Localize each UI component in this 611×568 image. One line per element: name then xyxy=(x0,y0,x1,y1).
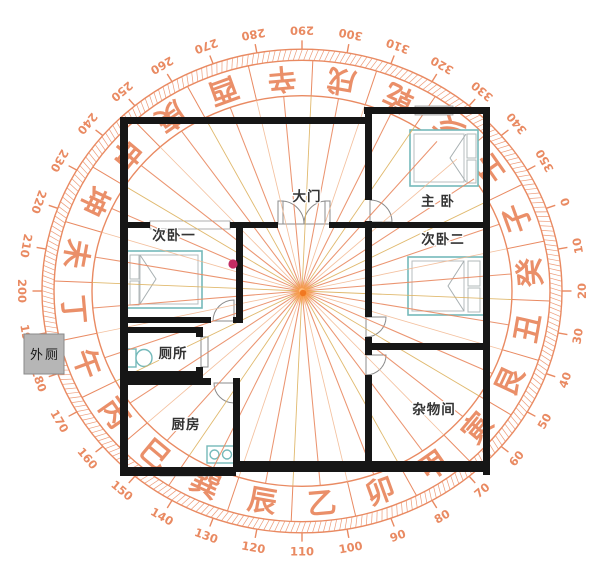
fine-tick xyxy=(548,326,558,331)
fine-tick xyxy=(243,517,249,526)
fine-tick xyxy=(550,278,561,281)
degree-number: 20 xyxy=(575,283,589,299)
fine-tick xyxy=(252,54,254,65)
fine-tick xyxy=(102,137,108,146)
mountain-char: 辛 xyxy=(266,61,298,97)
degree-tick xyxy=(69,166,77,170)
fine-tick xyxy=(186,499,194,507)
fine-tick xyxy=(296,522,300,532)
fine-tick xyxy=(65,388,77,389)
degree-number: 340 xyxy=(503,110,529,137)
degree-tick xyxy=(49,205,58,208)
fine-tick xyxy=(133,108,137,118)
degree-tick xyxy=(391,518,394,526)
fine-tick xyxy=(177,495,186,502)
fine-tick xyxy=(318,521,321,531)
degree-tick xyxy=(129,99,135,106)
fine-tick xyxy=(216,510,223,519)
fine-tick xyxy=(309,50,313,60)
fine-tick xyxy=(429,490,431,501)
sector-boundary xyxy=(311,61,313,96)
fine-tick xyxy=(237,57,238,68)
mountain-char: 癸 xyxy=(512,256,549,290)
room-label-main-door: 大门 xyxy=(293,188,322,204)
fine-tick xyxy=(550,307,561,311)
wall-kitchen-top xyxy=(120,378,211,385)
toilet-fixture xyxy=(127,349,152,367)
fine-tick xyxy=(52,226,62,232)
fine-tick xyxy=(548,322,558,327)
main-door xyxy=(278,201,330,224)
fine-tick xyxy=(550,293,561,297)
degree-number: 120 xyxy=(240,538,266,556)
fine-tick xyxy=(340,519,342,530)
fine-tick xyxy=(370,60,377,69)
wall-outer-top-left xyxy=(120,117,368,124)
fine-tick xyxy=(345,54,351,63)
fine-tick xyxy=(172,493,181,500)
degree-number: 10 xyxy=(569,237,586,255)
fine-tick xyxy=(86,157,93,166)
fine-tick xyxy=(498,145,509,148)
degree-number: 300 xyxy=(338,26,364,44)
fine-tick xyxy=(406,501,407,512)
fine-tick xyxy=(360,57,366,66)
fine-tick xyxy=(449,99,459,105)
fine-tick xyxy=(532,202,544,203)
fine-tick xyxy=(419,80,428,87)
fine-tick xyxy=(86,422,97,425)
fine-tick xyxy=(248,518,254,527)
degree-tick xyxy=(347,44,349,53)
degree-tick xyxy=(558,333,567,335)
fine-tick xyxy=(43,271,54,275)
fine-tick xyxy=(350,517,352,528)
degree-tick xyxy=(96,446,103,452)
degree-number: 230 xyxy=(47,147,71,175)
room-label-master-bedroom: 主 卧 xyxy=(421,193,455,209)
mountain-char: 坤 xyxy=(73,181,116,222)
fine-tick xyxy=(401,503,402,514)
mountain-char: 辰 xyxy=(245,481,279,520)
fine-tick xyxy=(141,102,145,112)
fine-tick xyxy=(44,316,55,318)
fine-tick xyxy=(55,216,64,222)
fine-tick xyxy=(365,59,372,68)
degree-number: 170 xyxy=(47,407,71,435)
fine-tick xyxy=(549,264,560,266)
degree-tick xyxy=(255,44,257,53)
fine-tick xyxy=(345,518,347,529)
sector-boundary xyxy=(82,381,116,397)
fine-tick xyxy=(99,141,105,150)
fine-tick xyxy=(438,484,441,494)
wall-second1-bottom-stub xyxy=(233,317,243,323)
fine-tick xyxy=(538,364,547,371)
fine-tick xyxy=(549,268,560,271)
degree-tick xyxy=(96,130,103,136)
door-arc-storage xyxy=(366,355,386,375)
fine-tick xyxy=(206,507,213,515)
fine-tick xyxy=(340,53,345,63)
sector-boundary xyxy=(248,66,256,101)
fine-tick xyxy=(372,513,373,524)
fine-tick xyxy=(434,487,437,498)
fine-tick xyxy=(405,73,413,81)
fine-tick xyxy=(154,483,163,489)
fine-tick xyxy=(441,93,450,99)
fine-tick xyxy=(253,519,259,528)
fine-tick xyxy=(45,326,56,328)
sector-boundary xyxy=(365,71,376,105)
fine-tick xyxy=(545,341,555,347)
fine-tick xyxy=(507,158,518,161)
fine-tick xyxy=(375,62,382,71)
fine-tick xyxy=(329,520,332,531)
fine-tick xyxy=(549,317,559,322)
fine-tick xyxy=(400,71,408,79)
degree-number: 280 xyxy=(240,26,266,44)
fine-tick xyxy=(72,179,80,187)
fine-tick xyxy=(447,479,450,489)
degree-tick xyxy=(167,500,172,508)
degree-number: 150 xyxy=(108,477,135,503)
fine-tick xyxy=(109,448,120,452)
degree-number: 50 xyxy=(534,411,554,432)
degree-number: 90 xyxy=(388,526,408,545)
sector-boundary xyxy=(502,350,538,361)
degree-number: 270 xyxy=(193,36,220,57)
fine-tick xyxy=(355,56,361,65)
fine-tick xyxy=(437,90,446,97)
fine-tick xyxy=(232,514,239,523)
fine-tick xyxy=(44,266,55,270)
fine-tick xyxy=(106,133,112,142)
degree-number: 160 xyxy=(74,445,100,472)
fine-tick xyxy=(397,505,398,516)
fine-tick xyxy=(54,221,63,227)
wall-front-1 xyxy=(120,222,150,228)
fine-tick xyxy=(211,509,218,517)
fine-tick xyxy=(470,115,480,120)
degree-tick xyxy=(546,374,555,377)
fine-tick xyxy=(521,179,532,181)
room-label-second-bedroom-1: 次卧一 xyxy=(152,227,196,243)
fine-tick xyxy=(187,75,189,86)
degree-number: 140 xyxy=(148,504,176,528)
degree-tick xyxy=(501,446,508,452)
fine-tick xyxy=(502,428,509,437)
fine-tick xyxy=(43,276,54,280)
fine-tick xyxy=(545,245,557,246)
fine-tick xyxy=(420,494,422,505)
fine-tick xyxy=(163,87,166,97)
wall-outer-right xyxy=(483,107,490,475)
fine-tick xyxy=(67,392,79,393)
fine-tick xyxy=(504,153,515,156)
fine-tick xyxy=(63,384,75,385)
fine-tick xyxy=(227,513,234,522)
mountain-char: 艮 xyxy=(488,360,531,402)
fine-tick xyxy=(43,281,54,285)
fine-tick xyxy=(313,522,316,532)
degree-tick xyxy=(527,166,535,170)
fine-tick xyxy=(442,482,445,492)
degree-number: 60 xyxy=(506,448,527,469)
fine-tick xyxy=(541,355,550,361)
wall-outer-bottom-right xyxy=(233,461,490,472)
fine-tick xyxy=(262,52,264,63)
fine-tick xyxy=(61,202,70,209)
fine-tick xyxy=(167,490,176,497)
wall-outer-left xyxy=(120,117,128,476)
fine-tick xyxy=(154,93,157,103)
degree-number: 310 xyxy=(384,36,411,57)
fine-tick xyxy=(323,521,326,532)
fine-tick xyxy=(473,119,483,124)
fine-tick xyxy=(524,395,532,403)
fine-tick xyxy=(92,149,99,158)
wall-second1-right xyxy=(236,222,243,323)
fine-tick xyxy=(521,399,529,407)
fine-tick xyxy=(550,283,561,286)
fine-tick xyxy=(548,259,559,261)
fine-tick xyxy=(109,129,115,138)
fine-tick xyxy=(283,50,286,60)
degree-tick xyxy=(210,518,213,526)
fine-tick xyxy=(505,424,512,433)
fine-tick xyxy=(380,63,387,72)
fine-tick xyxy=(242,56,243,67)
fine-tick xyxy=(288,50,291,60)
sector-boundary xyxy=(444,435,470,461)
sector-boundary xyxy=(187,86,205,117)
fine-tick xyxy=(70,184,78,192)
wall-hall-right-1 xyxy=(365,221,372,317)
fine-tick xyxy=(237,516,243,525)
fine-tick xyxy=(259,519,264,529)
fine-tick xyxy=(366,514,367,525)
fine-tick xyxy=(158,485,167,492)
fine-tick xyxy=(499,432,505,441)
fine-tick xyxy=(335,52,340,62)
fine-tick xyxy=(257,53,259,64)
degree-tick xyxy=(432,500,437,508)
fine-tick xyxy=(80,166,88,174)
fine-tick xyxy=(247,55,248,66)
fine-tick xyxy=(163,488,172,495)
fine-tick xyxy=(299,50,303,60)
sector-boundary xyxy=(512,300,550,302)
degree-number: 240 xyxy=(74,110,100,137)
fine-tick xyxy=(207,67,208,78)
fine-tick xyxy=(445,96,454,102)
fine-tick xyxy=(385,65,392,73)
fine-tick xyxy=(514,412,521,420)
degree-tick xyxy=(69,412,77,416)
mountain-char: 未 xyxy=(57,237,96,271)
fine-tick xyxy=(74,405,85,407)
fine-tick xyxy=(80,413,91,415)
fine-tick xyxy=(515,171,526,173)
fine-tick xyxy=(196,503,204,511)
fine-tick xyxy=(307,522,310,532)
fine-tick xyxy=(46,331,57,333)
fine-tick xyxy=(350,55,356,64)
fine-tick xyxy=(202,68,203,79)
room-label-toilet: 厕所 xyxy=(159,345,188,361)
outhouse-label: 外厕 xyxy=(30,348,60,363)
degree-number: 200 xyxy=(15,279,29,303)
fine-tick xyxy=(63,197,72,204)
fine-tick xyxy=(390,67,397,75)
wall-second1-bottom xyxy=(120,317,211,323)
fine-tick xyxy=(293,50,296,60)
marker-dot xyxy=(228,259,237,268)
degree-number: 250 xyxy=(108,78,135,104)
wall-outer-bottom-left xyxy=(120,467,236,476)
fine-tick xyxy=(539,359,548,365)
fine-tick xyxy=(172,82,174,93)
fine-tick xyxy=(269,521,274,531)
fine-tick xyxy=(534,373,543,380)
degree-number: 30 xyxy=(569,327,586,345)
fine-tick xyxy=(451,476,454,486)
fine-tick xyxy=(168,84,171,95)
compass-ray xyxy=(303,294,374,475)
fine-tick xyxy=(550,297,561,301)
wall-master-left-upper xyxy=(365,114,372,200)
degree-tick xyxy=(255,529,257,538)
fine-tick xyxy=(550,273,561,276)
degree-tick xyxy=(167,74,172,82)
fine-tick xyxy=(411,499,412,510)
fine-tick xyxy=(145,477,155,483)
fine-tick xyxy=(547,254,558,256)
degree-number: 330 xyxy=(468,78,495,104)
fine-tick xyxy=(43,296,54,299)
degree-number: 100 xyxy=(338,538,364,556)
fine-tick xyxy=(89,426,100,429)
fine-tick xyxy=(177,79,179,90)
fine-tick xyxy=(51,231,61,237)
fine-tick xyxy=(496,436,502,445)
fine-tick xyxy=(150,96,153,106)
fine-tick xyxy=(542,230,554,231)
compass-ray xyxy=(239,294,301,478)
fine-tick xyxy=(43,301,54,304)
fine-tick xyxy=(278,50,281,61)
fine-tick xyxy=(77,409,88,411)
sector-boundary xyxy=(134,121,160,147)
fine-tick xyxy=(105,444,116,448)
fine-tick xyxy=(304,50,308,60)
fine-tick xyxy=(523,184,535,185)
fine-tick xyxy=(540,226,552,227)
fine-tick xyxy=(416,497,418,508)
mountain-char: 丑 xyxy=(508,311,547,345)
fine-tick xyxy=(182,77,184,88)
degree-tick xyxy=(469,99,475,106)
fine-tick xyxy=(508,420,515,429)
fine-tick xyxy=(550,302,561,306)
fine-tick xyxy=(267,52,269,63)
fine-tick xyxy=(48,241,58,246)
fine-tick xyxy=(145,99,149,109)
fine-tick xyxy=(43,286,54,290)
fine-tick xyxy=(89,153,96,162)
compass-ray xyxy=(302,294,320,486)
mountain-char: 庚 xyxy=(149,94,192,138)
compass-center-glow xyxy=(290,280,316,306)
room-label-storage: 杂物间 xyxy=(412,401,456,417)
fine-tick xyxy=(532,378,541,385)
sector-boundary xyxy=(54,281,92,283)
fine-tick xyxy=(264,520,269,530)
fine-tick xyxy=(549,312,560,316)
wall-outer-top-right xyxy=(364,107,490,114)
fine-tick xyxy=(46,251,56,256)
fine-tick xyxy=(544,240,556,241)
fine-tick xyxy=(395,69,403,77)
degree-number: 80 xyxy=(432,506,453,526)
door-leaf-toilet xyxy=(201,337,208,367)
fine-tick xyxy=(495,141,506,145)
degree-tick xyxy=(501,130,508,136)
fine-tick xyxy=(519,404,527,412)
fine-tick xyxy=(77,170,85,178)
fine-tick xyxy=(61,379,73,380)
mountain-char: 戌 xyxy=(325,62,359,101)
fine-tick xyxy=(510,162,521,165)
degree-tick xyxy=(347,529,349,538)
fine-tick xyxy=(45,261,55,266)
mountain-char: 寅 xyxy=(455,406,500,450)
fine-tick xyxy=(425,492,427,503)
sector-boundary xyxy=(488,185,522,201)
wall-hall-right-3 xyxy=(365,375,372,467)
fine-tick xyxy=(149,480,158,486)
degree-tick xyxy=(558,247,567,249)
bed-second1 xyxy=(126,251,202,308)
fine-tick xyxy=(98,437,109,441)
fine-tick xyxy=(302,522,306,532)
degree-number: 110 xyxy=(290,544,314,558)
fine-tick xyxy=(544,345,554,351)
fine-tick xyxy=(546,336,556,341)
fine-tick xyxy=(334,520,336,531)
fine-tick xyxy=(511,416,518,425)
fine-tick xyxy=(530,382,539,389)
sector-boundary xyxy=(227,477,238,511)
fine-tick xyxy=(528,193,540,194)
degree-number: 320 xyxy=(428,53,456,77)
wall-front-3 xyxy=(329,222,483,228)
wall-toilet-bottom xyxy=(120,371,203,378)
fine-tick xyxy=(45,321,56,323)
room-label-kitchen: 厨房 xyxy=(172,416,201,432)
fine-tick xyxy=(43,306,54,309)
fine-tick xyxy=(95,433,106,436)
fine-tick xyxy=(83,418,94,421)
fine-tick xyxy=(528,386,536,393)
wall-kitchen-right xyxy=(233,378,240,470)
fine-tick xyxy=(432,87,441,94)
fine-tick xyxy=(197,70,198,81)
fine-tick xyxy=(191,501,199,509)
compass-ray xyxy=(266,294,302,484)
wall-toilet-top xyxy=(120,327,203,333)
